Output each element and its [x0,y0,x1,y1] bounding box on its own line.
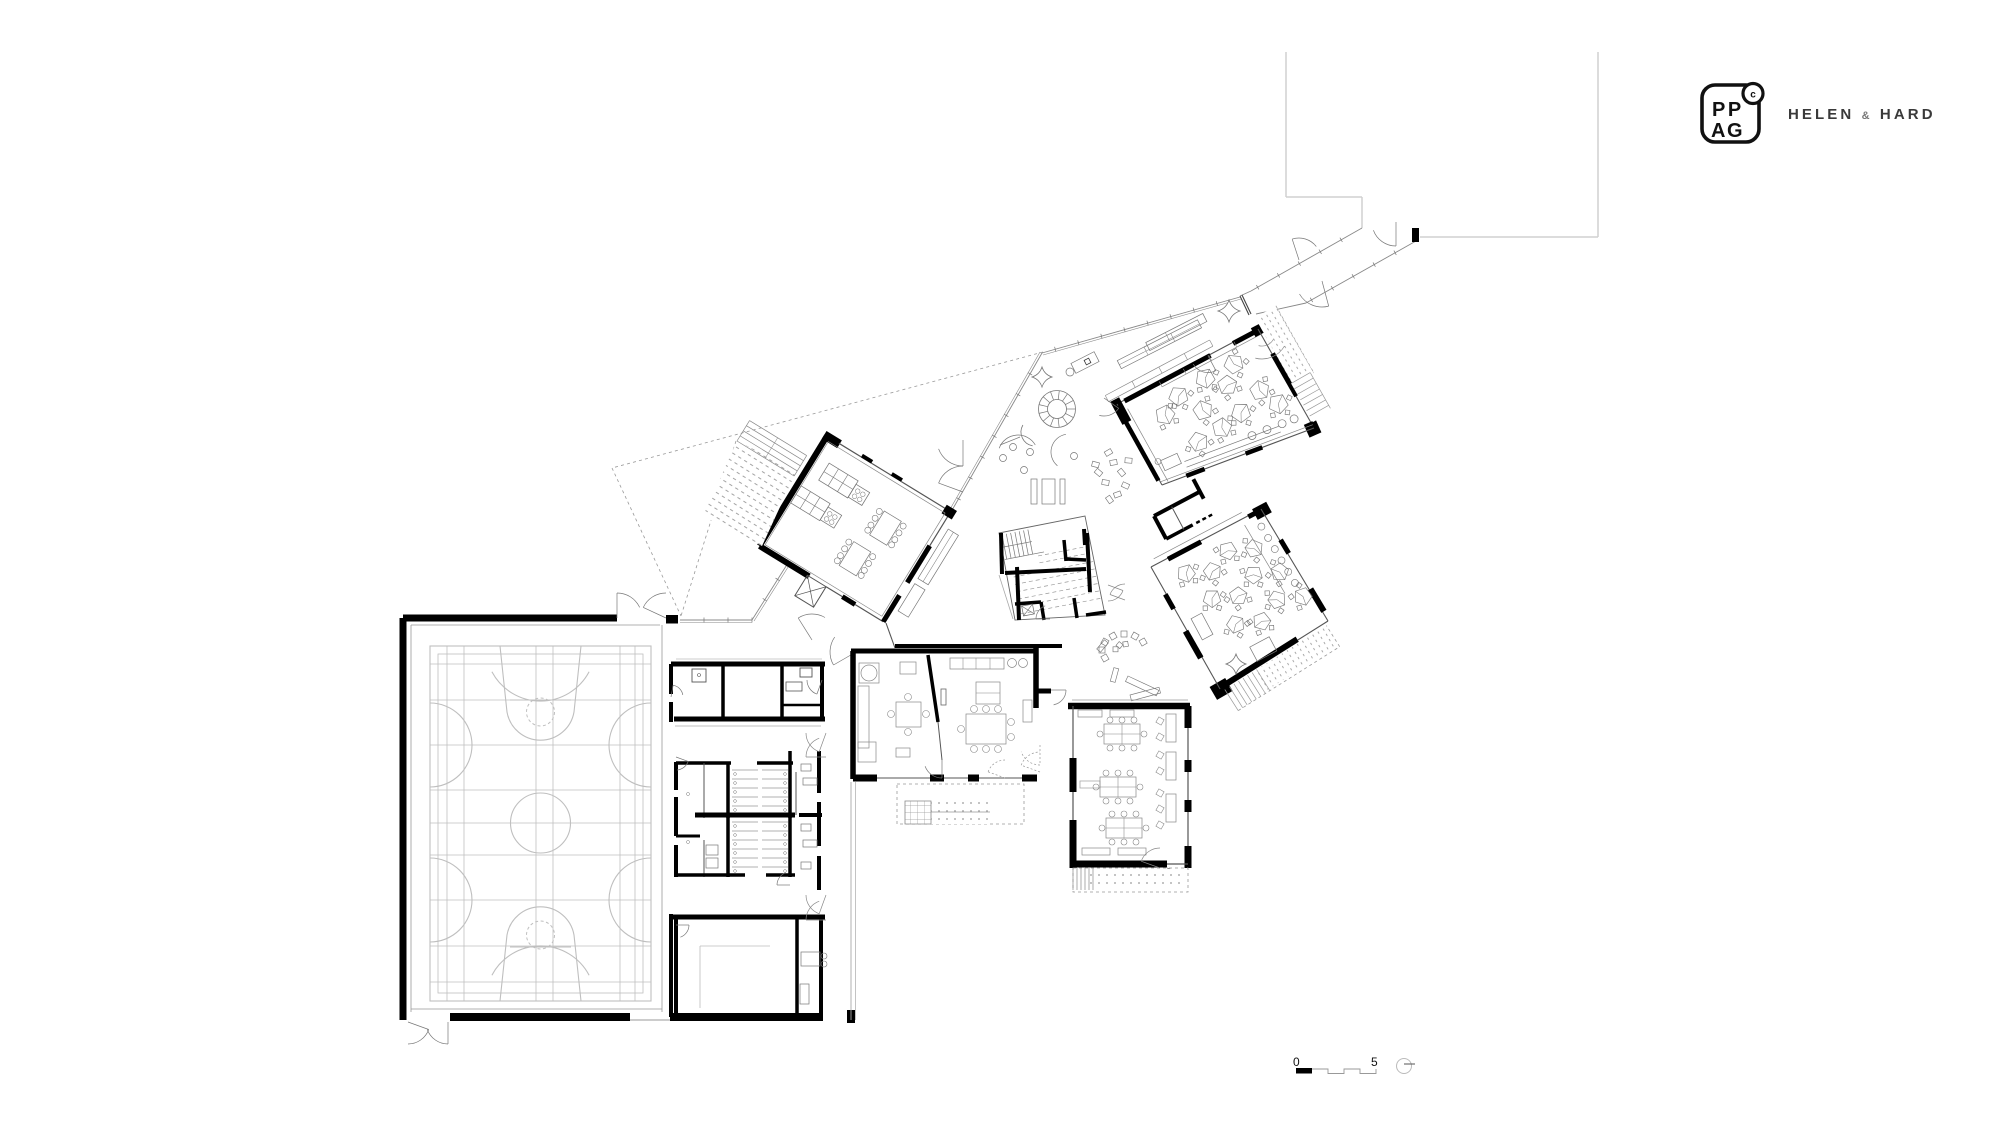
svg-text:0: 0 [1293,1055,1300,1069]
svg-text:AG: AG [1711,120,1744,142]
svg-text:PP: PP [1712,99,1744,121]
svg-text:5: 5 [1371,1055,1378,1069]
svg-text:c: c [1750,90,1756,101]
